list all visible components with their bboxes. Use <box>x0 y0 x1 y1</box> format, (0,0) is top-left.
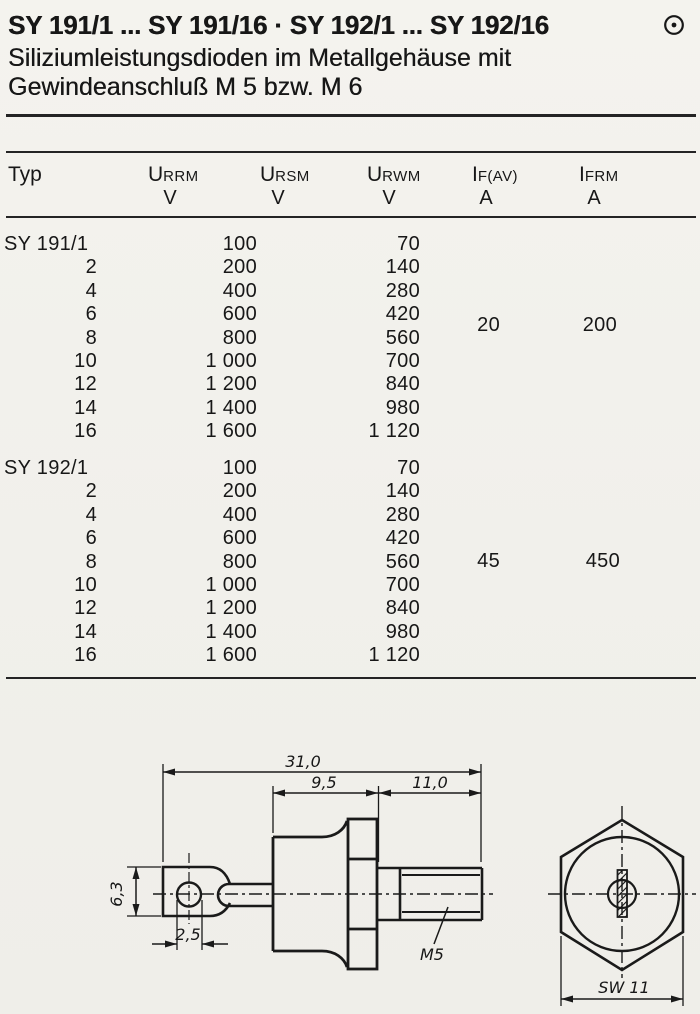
table-row: 141 400980 <box>4 621 420 644</box>
subscript: RRM <box>163 168 198 185</box>
arrow <box>561 996 573 1003</box>
cell-typ: SY 191/1 <box>4 233 97 256</box>
unit-ursm: V <box>266 187 290 210</box>
cell-urrm: 1 600 <box>97 644 257 667</box>
cell-urwm: 420 <box>257 303 420 326</box>
cell-urwm: 140 <box>257 256 420 279</box>
cell-typ: 6 <box>4 527 97 550</box>
cell-typ: 14 <box>4 397 97 420</box>
cell-typ: 10 <box>4 574 97 597</box>
hex-front-view <box>548 806 696 1006</box>
value-ifav-sy191: 20 <box>420 314 500 337</box>
cell-urwm: 980 <box>257 621 420 644</box>
cell-urwm: 980 <box>257 397 420 420</box>
table-row: 141 400980 <box>4 397 420 420</box>
cell-urwm: 560 <box>257 551 420 574</box>
column-header-urwm: URWM <box>367 163 421 187</box>
cell-urrm: 600 <box>97 527 257 550</box>
cell-urwm: 700 <box>257 350 420 373</box>
table-section-sy191: SY 191/110070220014044002806600420880056… <box>4 233 420 444</box>
cell-urrm: 1 000 <box>97 350 257 373</box>
cell-urrm: 1 200 <box>97 597 257 620</box>
table-row: 161 6001 120 <box>4 644 420 667</box>
cell-typ: SY 192/1 <box>4 457 97 480</box>
column-header-ifrm: IFRM <box>579 163 619 187</box>
subscript: RSM <box>275 168 310 185</box>
thread-label: M5 <box>420 945 444 964</box>
dim-label-total: 31,0 <box>285 752 321 771</box>
cell-urrm: 200 <box>97 256 257 279</box>
column-header-typ: Typ <box>8 163 42 187</box>
cell-typ: 2 <box>4 480 97 503</box>
cell-urwm: 840 <box>257 597 420 620</box>
divider-header-bottom <box>6 216 696 218</box>
value-ifav-sy192: 45 <box>420 550 500 573</box>
table-row: 121 200840 <box>4 597 420 620</box>
cell-urrm: 400 <box>97 280 257 303</box>
table-row: 8800560 <box>4 551 420 574</box>
arrow <box>379 790 391 797</box>
subscript: F(AV) <box>478 168 518 185</box>
cell-urrm: 800 <box>97 327 257 350</box>
solder-tab <box>163 867 273 916</box>
cell-urwm: 700 <box>257 574 420 597</box>
table-section-sy192: SY 192/110070220014044002806600420880056… <box>4 457 420 668</box>
cell-typ: 14 <box>4 621 97 644</box>
cell-typ: 4 <box>4 504 97 527</box>
table-row: 2200140 <box>4 256 420 279</box>
table-row: SY 191/110070 <box>4 233 420 256</box>
divider-top <box>6 114 696 117</box>
subscript: RWM <box>382 168 420 185</box>
dim-label-hole: 2,5 <box>175 925 200 944</box>
divider-table-bottom <box>6 677 696 679</box>
cell-typ: 8 <box>4 327 97 350</box>
arrow <box>366 790 378 797</box>
divider-table-top <box>6 151 696 153</box>
cell-urrm: 100 <box>97 233 257 256</box>
dim-label-stud: 11,0 <box>412 773 448 792</box>
unit-urwm: V <box>377 187 401 210</box>
cell-urrm: 600 <box>97 303 257 326</box>
cell-urrm: 1 400 <box>97 621 257 644</box>
value-ifrm-sy192: 450 <box>540 550 620 573</box>
cell-urwm: 70 <box>257 233 420 256</box>
package-outline-drawing: 31,0 9,5 11,0 6,3 2,5 M5 SW 11 <box>0 740 700 1014</box>
page-title: SY 191/1 ... SY 191/16 · SY 192/1 ... SY… <box>8 10 668 41</box>
cell-urrm: 800 <box>97 551 257 574</box>
tab-edge-hatched <box>618 870 628 917</box>
cell-urwm: 420 <box>257 527 420 550</box>
arrow <box>469 769 481 776</box>
cell-urrm: 200 <box>97 480 257 503</box>
arrow <box>133 867 140 879</box>
page-subtitle: Siliziumleistungsdioden im Metallgehäuse… <box>8 44 648 102</box>
cell-typ: 12 <box>4 597 97 620</box>
table-row: 6600420 <box>4 527 420 550</box>
cell-urrm: 400 <box>97 504 257 527</box>
cell-typ: 16 <box>4 420 97 443</box>
cell-typ: 6 <box>4 303 97 326</box>
cell-urwm: 70 <box>257 457 420 480</box>
table-row: 6600420 <box>4 303 420 326</box>
table-row: SY 192/110070 <box>4 457 420 480</box>
table-row: 101 000700 <box>4 350 420 373</box>
cell-typ: 16 <box>4 644 97 667</box>
arrow <box>671 996 683 1003</box>
cell-urrm: 100 <box>97 457 257 480</box>
symbol: U <box>367 163 382 186</box>
cell-urrm: 1 600 <box>97 420 257 443</box>
unit-ifav: A <box>474 187 498 210</box>
table-row: 101 000700 <box>4 574 420 597</box>
cell-urwm: 560 <box>257 327 420 350</box>
table-row: 161 6001 120 <box>4 420 420 443</box>
cell-typ: 8 <box>4 551 97 574</box>
symbol: U <box>148 163 163 186</box>
circled-dot-icon <box>663 14 685 36</box>
column-header-ursm: URSM <box>260 163 310 187</box>
cell-typ: 10 <box>4 350 97 373</box>
value-ifrm-sy191: 200 <box>537 314 617 337</box>
cell-urrm: 1 000 <box>97 574 257 597</box>
cell-urwm: 280 <box>257 504 420 527</box>
cell-urwm: 1 120 <box>257 644 420 667</box>
table-row: 2200140 <box>4 480 420 503</box>
subtitle-line-2: Gewindeanschluß M 5 bzw. M 6 <box>8 73 648 102</box>
subscript: FRM <box>585 168 619 185</box>
table-row: 4400280 <box>4 504 420 527</box>
cell-urrm: 1 400 <box>97 397 257 420</box>
arrow <box>273 790 285 797</box>
cell-urwm: 140 <box>257 480 420 503</box>
cell-urwm: 840 <box>257 373 420 396</box>
arrow <box>133 904 140 916</box>
table-row: 121 200840 <box>4 373 420 396</box>
cell-urrm: 1 200 <box>97 373 257 396</box>
dim-tab-height <box>127 867 161 916</box>
symbol: U <box>260 163 275 186</box>
dim-label-tab-height: 6,3 <box>107 881 126 906</box>
cell-urwm: 280 <box>257 280 420 303</box>
unit-ifrm: A <box>582 187 606 210</box>
arrow <box>163 769 175 776</box>
subtitle-line-1: Siliziumleistungsdioden im Metallgehäuse… <box>8 44 648 73</box>
table-row: 4400280 <box>4 280 420 303</box>
cell-typ: 2 <box>4 256 97 279</box>
cell-typ: 4 <box>4 280 97 303</box>
unit-urrm: V <box>158 187 182 210</box>
cell-typ: 12 <box>4 373 97 396</box>
datasheet-page: SY 191/1 ... SY 191/16 · SY 192/1 ... SY… <box>0 0 700 1014</box>
column-header-ifav: IF(AV) <box>472 163 518 187</box>
cell-urwm: 1 120 <box>257 420 420 443</box>
arrow <box>202 941 214 948</box>
arrow <box>469 790 481 797</box>
wrench-size-label: SW 11 <box>598 978 649 997</box>
column-header-urrm: URRM <box>148 163 199 187</box>
dim-body-length <box>273 786 379 862</box>
dim-label-body: 9,5 <box>311 773 336 792</box>
table-row: 8800560 <box>4 327 420 350</box>
